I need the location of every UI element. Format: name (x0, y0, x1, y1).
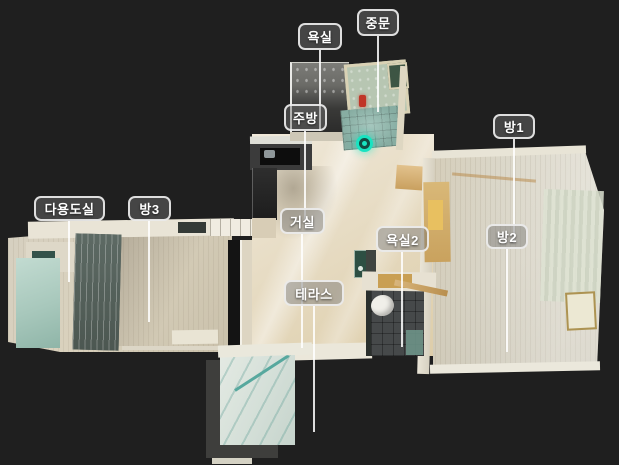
label-line-room3 (148, 221, 150, 322)
room2-door (565, 291, 597, 331)
room-label-utility-room[interactable]: 다용도실 (34, 196, 105, 221)
room-label-room1[interactable]: 방1 (493, 114, 535, 139)
label-line-terrace (313, 306, 315, 432)
room-label-room2[interactable]: 방2 (486, 224, 528, 249)
terrace-floor (220, 352, 295, 445)
utility-room-glass-floor (16, 258, 60, 348)
kitchen-pot (264, 150, 275, 158)
utility-room-tiled-wall (72, 233, 121, 350)
green-door-sign-dot (358, 266, 363, 271)
label-line-room2 (506, 249, 508, 352)
terrace-bottom-sill (212, 458, 252, 464)
room-label-living-room[interactable]: 거실 (280, 208, 325, 234)
room-label-bathroom2[interactable]: 욕실2 (376, 226, 429, 252)
room-label-bathroom[interactable]: 욕실 (298, 23, 342, 50)
room-label-room3[interactable]: 방3 (128, 196, 171, 221)
label-line-bathroom2 (401, 252, 403, 347)
viewpoint-marker-dot (362, 141, 367, 146)
terrace-bottom-frame (206, 444, 278, 458)
curtain-panel (540, 189, 604, 303)
room-label-entry-door[interactable]: 중문 (357, 9, 399, 36)
kitchen-cabinet-column (252, 168, 277, 220)
left-wing-bottom-wall (122, 346, 224, 350)
wood-shelf-highlight (428, 200, 443, 230)
left-doorway-gap (228, 240, 240, 352)
bathroom-threshold (290, 132, 347, 141)
left-wing-window (178, 222, 206, 233)
room-label-terrace[interactable]: 테라스 (284, 280, 344, 306)
fire-extinguisher (359, 95, 366, 107)
floorplan-canvas[interactable]: 욕실 중문 주방 방1 다용도실 방3 거실 욕실2 방2 테라스 (0, 0, 619, 465)
room3-bench (172, 330, 218, 345)
bathroom2-shower-glass (406, 330, 423, 355)
label-line-utility-room (68, 221, 70, 282)
room-label-kitchen[interactable]: 주방 (284, 104, 327, 131)
label-line-entry-door (377, 36, 379, 112)
kitchen-lower-cabinet (252, 218, 276, 238)
viewpoint-marker[interactable] (356, 135, 373, 152)
viewpoint-marker-ring (359, 138, 370, 149)
left-wing-cabinet-top (210, 219, 252, 236)
